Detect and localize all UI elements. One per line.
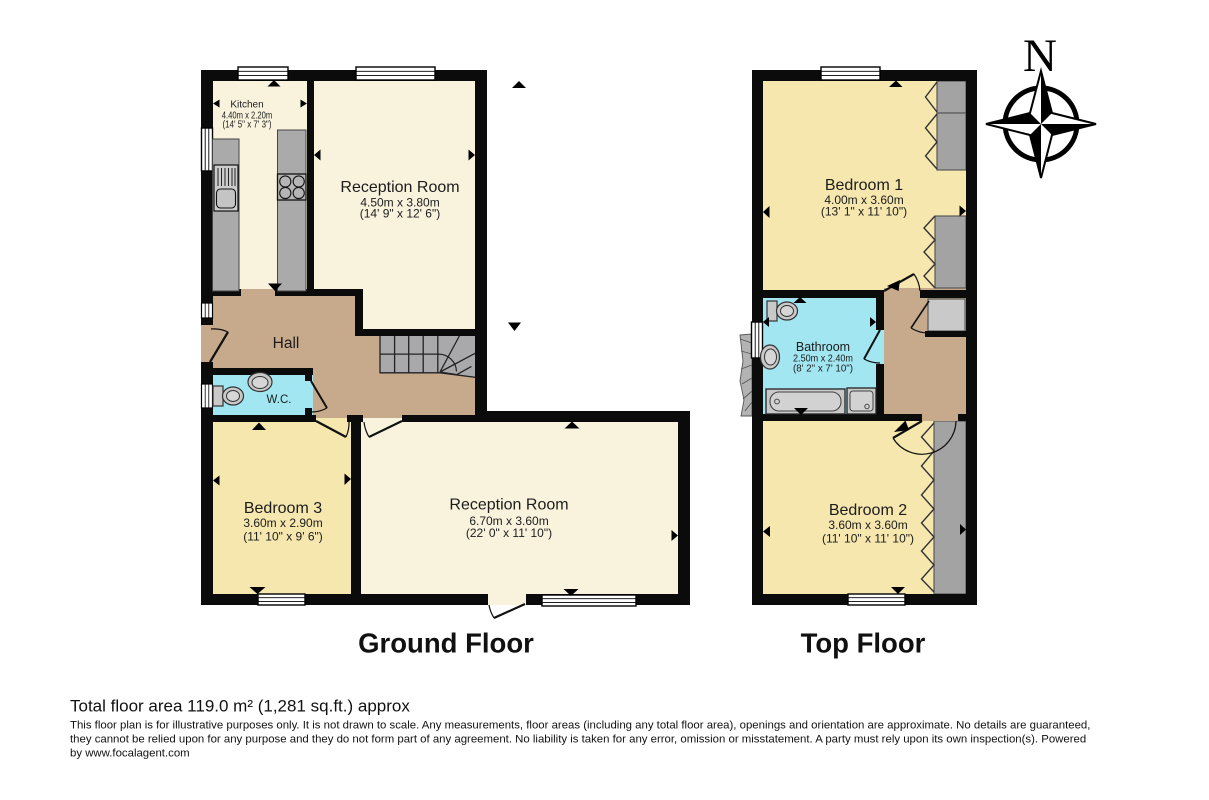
svg-text:they cannot be relied upon for: they cannot be relied upon for any purpo…: [70, 734, 1086, 746]
svg-text:(22' 0" x 11' 10"): (22' 0" x 11' 10"): [466, 526, 552, 540]
svg-text:(8' 2" x 7' 10"): (8' 2" x 7' 10"): [793, 364, 853, 375]
svg-text:Bathroom: Bathroom: [796, 340, 850, 354]
svg-text:Reception Room: Reception Room: [449, 497, 568, 514]
svg-text:Reception Room: Reception Room: [340, 179, 459, 196]
svg-text:Hall: Hall: [273, 335, 300, 352]
svg-text:Bedroom 1: Bedroom 1: [825, 177, 903, 194]
svg-text:(11' 10" x 9' 6"): (11' 10" x 9' 6"): [243, 530, 323, 544]
svg-text:Ground Floor: Ground Floor: [358, 628, 534, 659]
svg-text:(14' 9" x 12' 6"): (14' 9" x 12' 6"): [360, 207, 440, 221]
svg-text:(11' 10" x 11' 10"): (11' 10" x 11' 10"): [822, 532, 914, 546]
svg-text:Bedroom 2: Bedroom 2: [829, 502, 907, 519]
svg-text:Top Floor: Top Floor: [801, 628, 926, 659]
svg-text:This floor plan is for illustr: This floor plan is for illustrative purp…: [70, 720, 1090, 732]
svg-text:W.C.: W.C.: [267, 394, 292, 406]
svg-text:by www.focalagent.com: by www.focalagent.com: [70, 748, 190, 760]
svg-text:Total floor area 119.0 m² (1,2: Total floor area 119.0 m² (1,281 sq.ft.)…: [70, 697, 410, 716]
svg-text:Kitchen: Kitchen: [230, 100, 263, 111]
svg-text:3.60m x 2.90m: 3.60m x 2.90m: [243, 516, 322, 530]
svg-text:3.60m x 3.60m: 3.60m x 3.60m: [828, 518, 907, 532]
svg-text:(13' 1" x 11' 10"): (13' 1" x 11' 10"): [821, 205, 907, 219]
svg-text:(14' 5" x 7' 3"): (14' 5" x 7' 3"): [223, 120, 272, 131]
svg-text:Bedroom 3: Bedroom 3: [244, 500, 322, 517]
